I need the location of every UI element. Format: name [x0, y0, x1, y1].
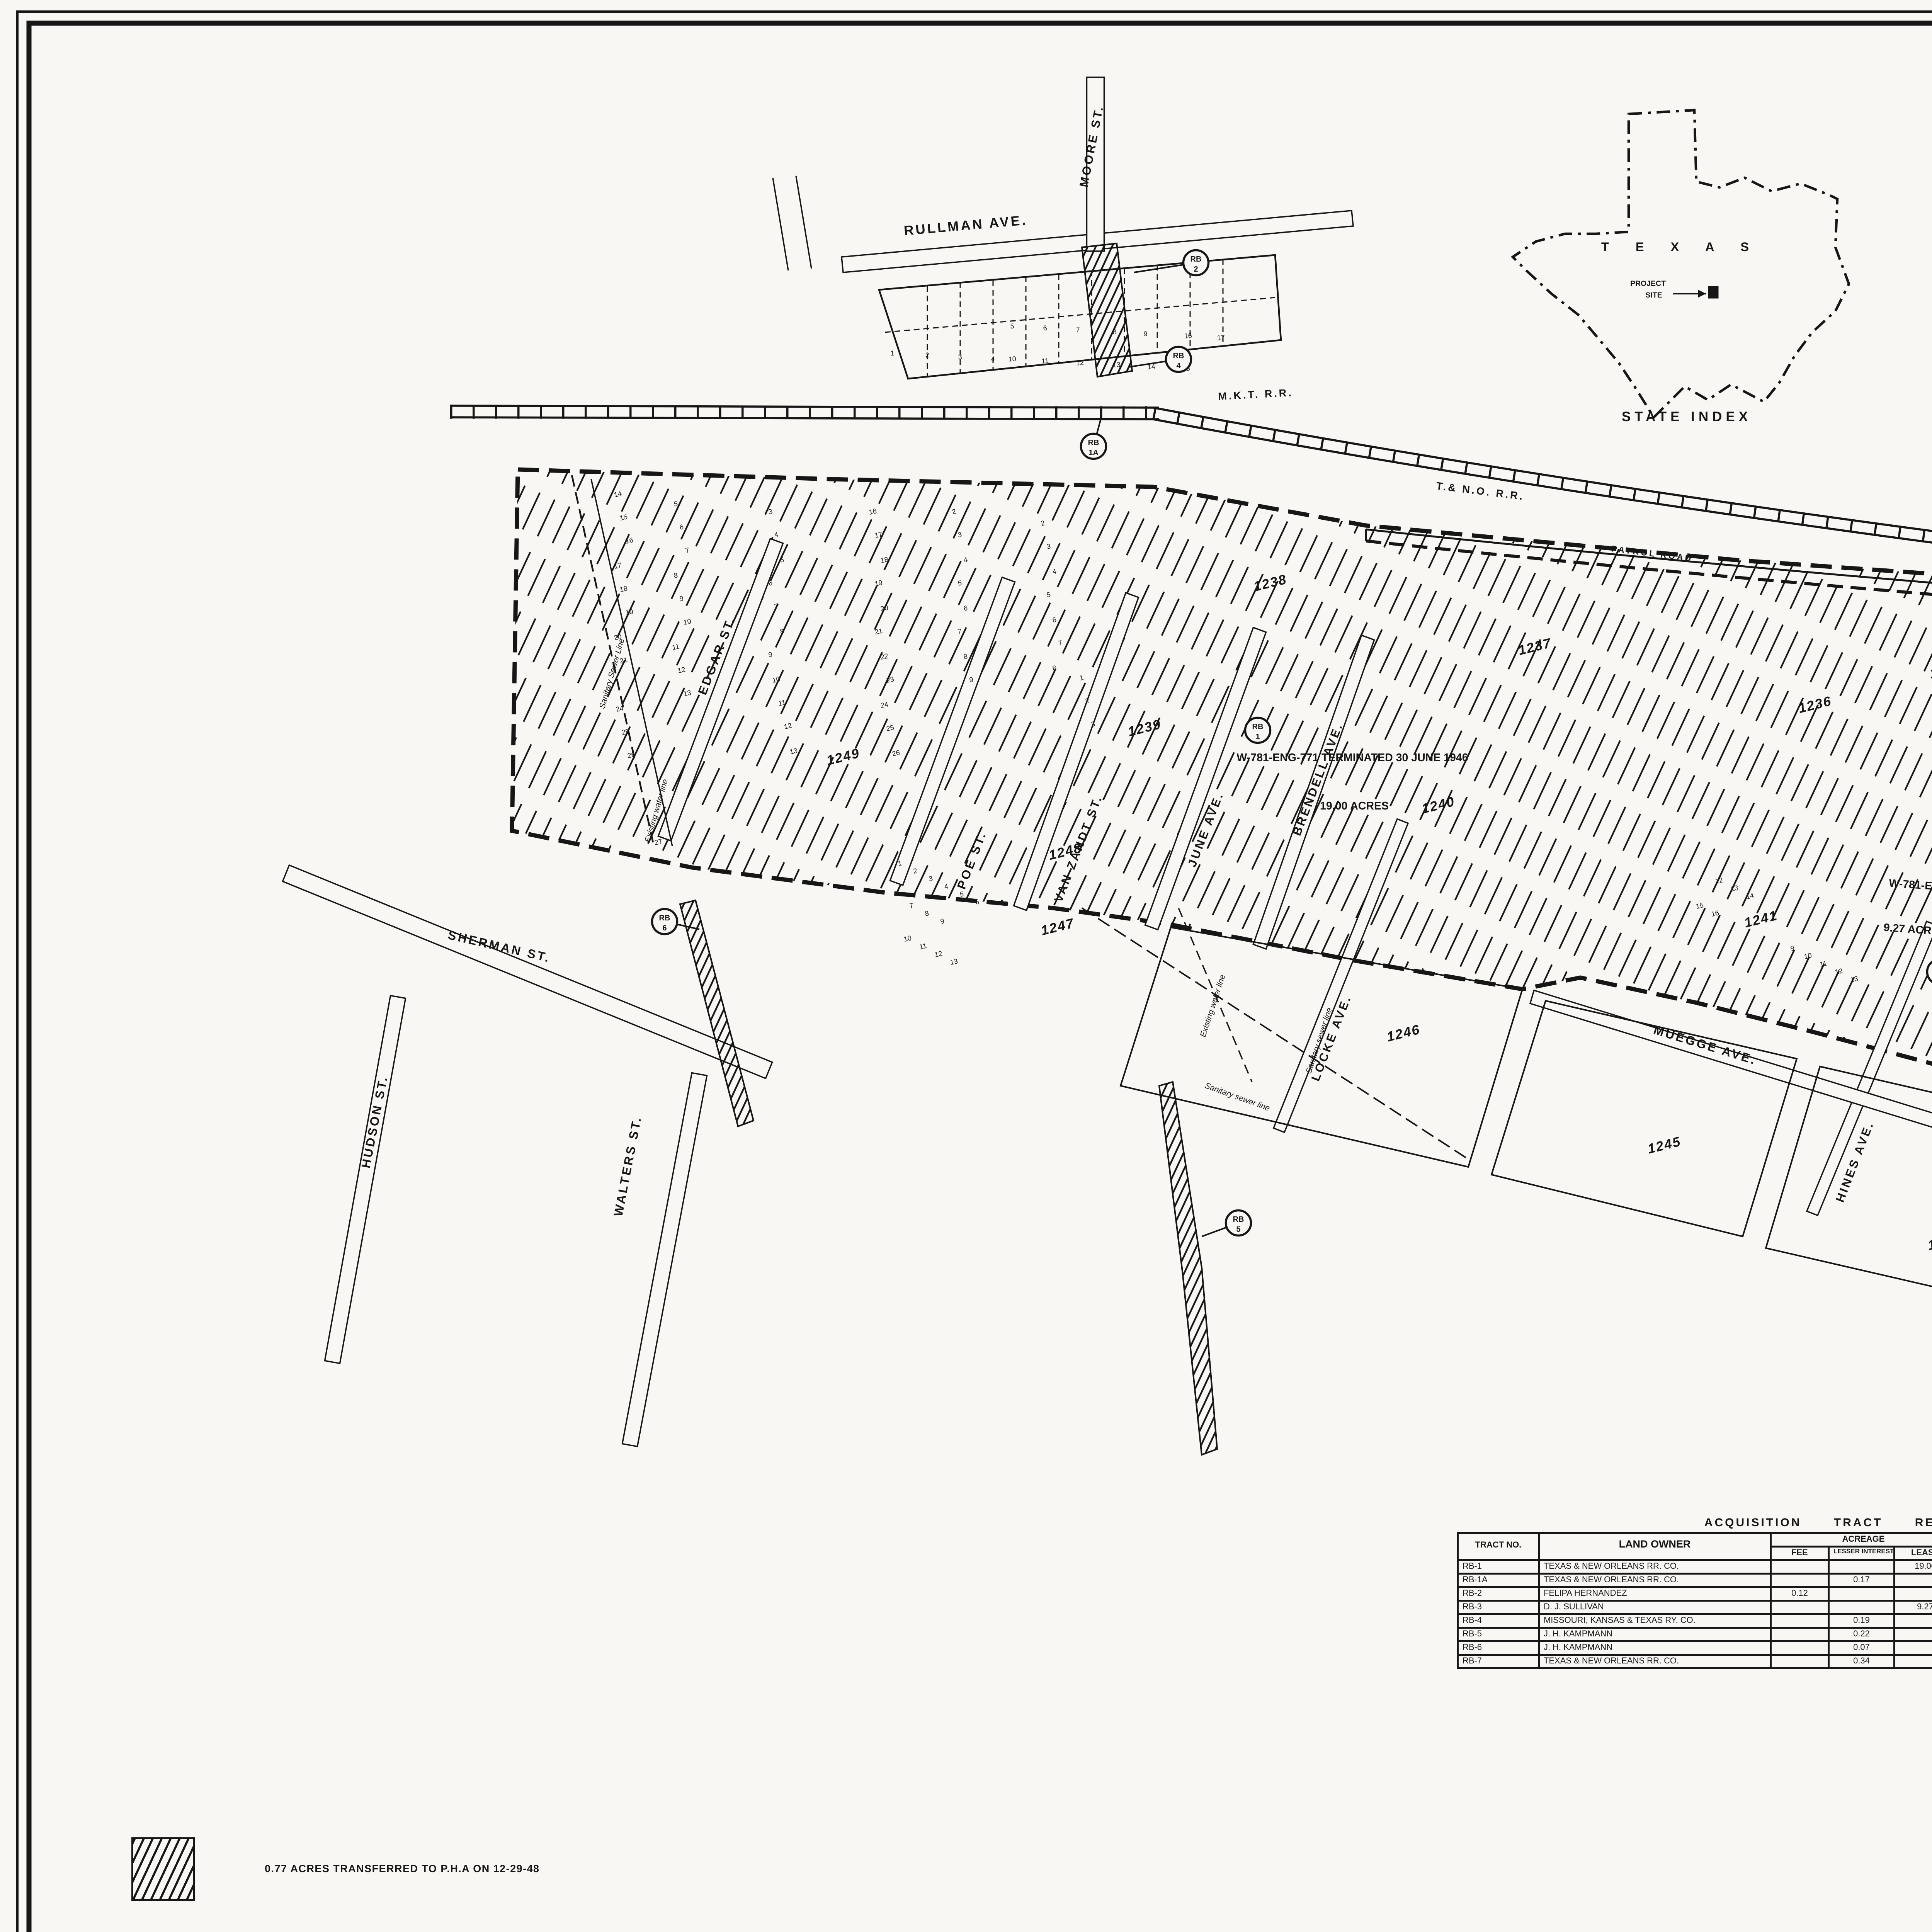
col-acreage: ACREAGE — [1771, 1533, 1932, 1547]
lot-number: 17 — [1217, 333, 1225, 342]
lot-number: 10 — [1803, 951, 1813, 961]
tract-number-label: 1244 — [1926, 1230, 1932, 1253]
rb-marker-prefix: RB — [1190, 255, 1202, 264]
acquisition-tract-register: ACQUISITION TRACT REGISTER TRACT NO. LAN… — [1457, 1519, 1932, 1670]
lot-number: 4 — [991, 355, 995, 363]
street-label: RULLMAN AVE. — [903, 213, 1028, 238]
register-title: ACQUISITION TRACT REGISTER — [1457, 1519, 1932, 1530]
lot-number: 11 — [672, 642, 680, 651]
lot-number: 17 — [613, 561, 622, 570]
register-row-rb1: RB-1TEXAS & NEW ORLEANS RR. CO.19.00W-78… — [1458, 1560, 1932, 1574]
rb-marker-id: 6 — [662, 924, 667, 932]
register-row-rb6: RB-6J. H. KAMPMANN0.07Perpetual Easement… — [1458, 1642, 1932, 1655]
hudson-st-corridor — [325, 996, 406, 1364]
lot-number: 13 — [949, 957, 959, 966]
lot-number: 12 — [677, 665, 686, 675]
lot-number: 12 — [783, 721, 793, 731]
lot-number: 18 — [619, 584, 628, 594]
lot-number: 20 — [880, 604, 889, 613]
lot-number: 11 — [778, 698, 786, 707]
lot-number: 25 — [621, 727, 630, 736]
tract-number-label: 1246 — [1385, 1022, 1422, 1044]
street-label: HUDSON ST. — [359, 1074, 390, 1169]
lot-number: 19 — [874, 578, 883, 588]
south-water-line-strip — [1159, 1082, 1217, 1455]
moore-st-easement-strip — [1082, 243, 1132, 377]
lot-number: 10 — [683, 617, 692, 626]
lot-number: 24 — [880, 700, 889, 709]
lot-number: 16 — [1711, 909, 1720, 918]
col-lesser-interest: LESSER INTEREST — [1829, 1547, 1895, 1560]
lot-number: 9 — [1143, 330, 1148, 338]
lot-number: 14 — [613, 490, 622, 499]
register-row-rb4: RB-4MISSOURI, KANSAS & TEXAS RY. CO.0.19… — [1458, 1614, 1932, 1628]
street-label: T.& N.O. R.R. — [1435, 480, 1525, 502]
lot-number: 5 — [1010, 322, 1014, 330]
lot-number: 13 — [789, 747, 798, 756]
col-lease: LEASE — [1895, 1547, 1932, 1560]
rb-marker-prefix: RB — [659, 914, 670, 922]
rb-marker-prefix: RB — [1252, 723, 1264, 731]
col-land-owner: LAND OWNER — [1539, 1533, 1771, 1560]
lot-number: 21 — [874, 627, 883, 636]
lot-number: 9 — [940, 917, 945, 925]
register-table: TRACT NO. LAND OWNER ACREAGE REMARKS FEE… — [1457, 1532, 1932, 1670]
lot-number: 16 — [1184, 332, 1192, 340]
lot-number: 24 — [615, 704, 624, 713]
lot-number: 8 — [924, 909, 930, 918]
lot-number: 18 — [880, 555, 889, 565]
state-index-caption: STATE INDEX — [1622, 409, 1752, 424]
lot-number: 19 — [625, 607, 634, 617]
pha-note-text: 0.77 ACRES TRANSFERRED TO P.H.A ON 12-29… — [265, 1864, 540, 1875]
lot-number: 22 — [880, 652, 889, 661]
map-annotation: W-781-ENG-771 TERMINATED 30 JUNE 1946 — [1236, 752, 1468, 764]
tract-number-label: 1247 — [1039, 915, 1076, 938]
project-site-label-2: SITE — [1645, 291, 1662, 299]
lot-number: 25 — [886, 723, 895, 733]
reservation-band — [512, 469, 1932, 1240]
register-row-rb2: RB-2FELIPA HERNANDEZ0.12 — [1458, 1587, 1932, 1601]
utility-line-label: Existing water line — [1199, 973, 1227, 1038]
lot-number: 23 — [886, 675, 895, 684]
lot-number: 13 — [1730, 884, 1739, 893]
col-tract-no: TRACT NO. — [1458, 1533, 1539, 1560]
pha-transfer-note: 0.77 ACRES TRANSFERRED TO P.H.A ON 12-29… — [131, 1837, 540, 1901]
project-site-label-1: PROJECT — [1630, 279, 1666, 288]
lot-number: 12 — [1834, 967, 1844, 976]
lot-number: 11 — [1819, 959, 1828, 968]
lot-number: 1 — [890, 349, 895, 357]
lot-number: 27 — [654, 837, 663, 847]
rb-marker-prefix: RB — [1233, 1215, 1244, 1224]
lot-number: 8 — [1112, 328, 1117, 336]
texas-label: T E X A S — [1601, 240, 1760, 254]
lot-number: 16 — [868, 507, 878, 516]
lot-number: 26 — [627, 750, 636, 760]
lot-number: 14 — [1745, 891, 1755, 901]
lot-number: 15 — [1695, 901, 1704, 910]
rb-marker-id: 1A — [1088, 449, 1099, 457]
project-site-dot — [1708, 286, 1719, 299]
lot-number: 12 — [1714, 876, 1724, 885]
register-row-rb7: RB-7TEXAS & NEW ORLEANS RR. CO.0.34Licen… — [1458, 1655, 1932, 1669]
lot-number: 13 — [683, 689, 692, 698]
lot-number: 7 — [909, 901, 914, 910]
lot-number: 13 — [1112, 361, 1121, 369]
rb-marker-prefix: RB — [1173, 352, 1184, 360]
col-fee: FEE — [1771, 1547, 1829, 1560]
lot-number: 6 — [1043, 324, 1047, 332]
lot-number: 10 — [1008, 355, 1016, 363]
pha-hatch-swatch — [131, 1837, 195, 1901]
register-row-rb5: RB-5J. H. KAMPMANN0.22Perpetual Easement… — [1458, 1628, 1932, 1642]
lot-number: 11 — [919, 942, 927, 951]
register-row-rb3: RB-3D. J. SULLIVAN9.27W-781-eng-647, dat… — [1458, 1601, 1932, 1614]
lot-number: 3 — [958, 353, 962, 361]
register-row-rb1a: RB-1ATEXAS & NEW ORLEANS RR. CO.0.17Ease… — [1458, 1574, 1932, 1587]
lot-number: 12 — [934, 949, 943, 959]
street-label: WALTERS ST. — [611, 1115, 644, 1218]
rb-marker-id: 5 — [1236, 1225, 1240, 1234]
lot-number: 26 — [891, 748, 901, 758]
rb-marker-prefix: RB — [1088, 439, 1099, 447]
lot-number: 12 — [1076, 359, 1084, 367]
lot-number: 10 — [903, 934, 912, 943]
lot-number: 15 — [619, 513, 628, 522]
rb-marker-id: 2 — [1194, 265, 1198, 274]
map-annotation: 19.00 ACRES — [1320, 800, 1389, 812]
rb-marker-id: 4 — [1176, 362, 1181, 370]
lot-number: 10 — [772, 675, 781, 684]
rullman-lot-grid — [773, 176, 1281, 379]
reservation-line-boundary — [512, 469, 1932, 1240]
lot-number: 11 — [1041, 357, 1049, 365]
lot-number: 2 — [925, 351, 929, 359]
rb-marker-id: 1 — [1255, 733, 1260, 741]
street-label: M.K.T. R.R. — [1218, 387, 1294, 402]
lot-number: 7 — [1076, 326, 1080, 334]
register-header-row: TRACT NO. LAND OWNER ACREAGE REMARKS — [1458, 1533, 1932, 1547]
lot-number: 13 — [1850, 975, 1859, 984]
map-sheet: T E X A S PROJECT SITE STATE INDEX N S W… — [0, 0, 1932, 1932]
texas-outline — [1513, 110, 1849, 417]
tract-number-label: 1245 — [1646, 1134, 1683, 1156]
lot-number: 17 — [874, 530, 883, 539]
state-index-map: T E X A S PROJECT SITE STATE INDEX — [1513, 110, 1849, 424]
lot-number: 16 — [625, 536, 634, 545]
